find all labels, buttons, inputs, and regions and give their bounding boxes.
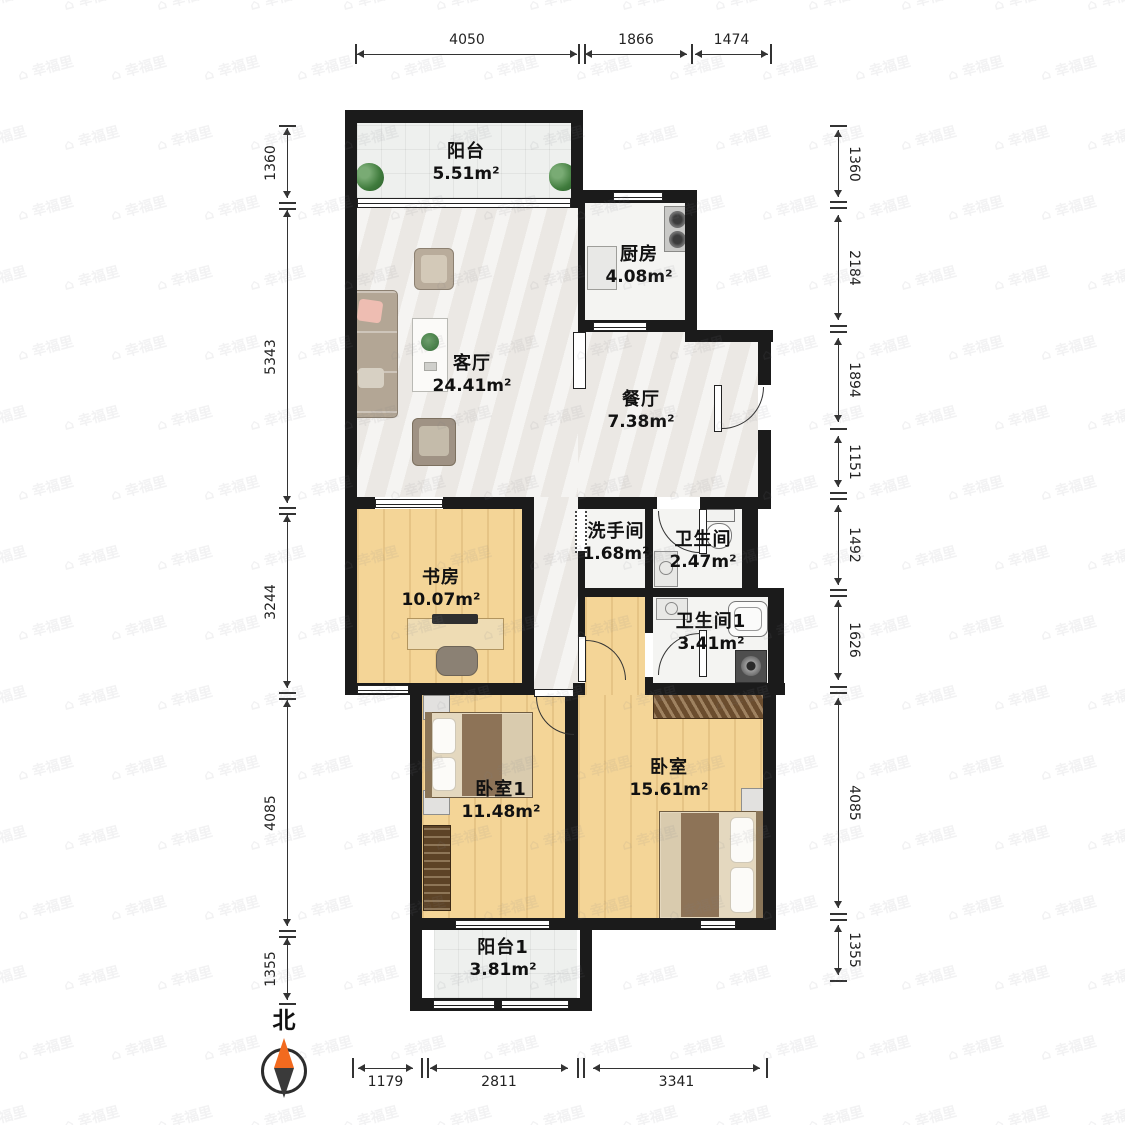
watermark-logo: ⌂ 幸福里 — [340, 0, 400, 15]
watermark-logo: ⌂ 幸福里 — [898, 961, 958, 995]
dimension-label: 1894 — [846, 362, 862, 398]
dimension-arrow — [358, 1068, 413, 1069]
wall — [578, 203, 585, 332]
watermark-logo: ⌂ 幸福里 — [852, 191, 912, 225]
dimension-tick — [691, 44, 693, 64]
watermark-logo: ⌂ 幸福里 — [1084, 121, 1125, 155]
watermark-logo: ⌂ 幸福里 — [201, 331, 261, 365]
watermark-logo: ⌂ 幸福里 — [991, 0, 1051, 15]
dimension-tick — [770, 44, 772, 64]
room-name: 洗手间 — [582, 520, 649, 543]
watermark-logo: ⌂ 幸福里 — [1038, 891, 1098, 925]
watermark-logo: ⌂ 幸福里 — [1084, 681, 1125, 715]
watermark-logo: ⌂ 幸福里 — [294, 51, 354, 85]
dimension-arrow — [287, 700, 288, 926]
watermark-logo: ⌂ 幸福里 — [154, 821, 214, 855]
dimension-tick — [830, 589, 847, 591]
watermark-logo: ⌂ 幸福里 — [108, 191, 168, 225]
wall — [522, 509, 534, 683]
room-area: 10.07m² — [402, 589, 481, 611]
watermark-logo: ⌂ 幸福里 — [340, 1101, 400, 1125]
watermark-logo: ⌂ 幸福里 — [108, 611, 168, 645]
watermark-logo: ⌂ 幸福里 — [108, 471, 168, 505]
watermark-logo: ⌂ 幸福里 — [619, 1101, 679, 1125]
room-label-balcony1: 阳台13.81m² — [469, 936, 536, 981]
watermark-logo: ⌂ 幸福里 — [712, 1101, 772, 1125]
dimension-tick — [279, 692, 296, 694]
window — [357, 198, 571, 208]
dimension-label: 3244 — [263, 584, 279, 620]
room-label-dining: 餐厅7.38m² — [607, 388, 674, 433]
watermark-logo: ⌂ 幸福里 — [61, 961, 121, 995]
watermark-logo: ⌂ 幸福里 — [852, 1031, 912, 1065]
dimension-label: 4050 — [449, 32, 485, 48]
dimension-arrow — [838, 600, 839, 680]
watermark-logo: ⌂ 幸福里 — [898, 681, 958, 715]
door-leaf — [578, 636, 586, 682]
dimension-tick — [279, 930, 296, 932]
plant — [356, 163, 384, 191]
watermark-logo: ⌂ 幸福里 — [0, 961, 29, 995]
dimension-tick — [279, 125, 296, 127]
watermark-logo: ⌂ 幸福里 — [619, 121, 679, 155]
watermark-logo: ⌂ 幸福里 — [898, 121, 958, 155]
watermark-logo: ⌂ 幸福里 — [991, 401, 1051, 435]
dimension-arrow — [838, 925, 839, 975]
bed-headboard — [756, 811, 763, 919]
watermark-logo: ⌂ 幸福里 — [201, 751, 261, 785]
dimension-tick — [830, 331, 847, 333]
dimension-tick — [830, 913, 847, 915]
room-label-bedroom: 卧室15.61m² — [630, 756, 709, 801]
watermark-logo: ⌂ 幸福里 — [340, 961, 400, 995]
dimension-tick — [577, 1058, 579, 1078]
dimension-tick — [279, 507, 296, 509]
room-area: 2.47m² — [669, 551, 736, 573]
watermark-logo: ⌂ 幸福里 — [898, 401, 958, 435]
wall — [345, 509, 357, 695]
watermark-logo: ⌂ 幸福里 — [0, 261, 29, 295]
window — [593, 322, 647, 331]
floor-hallway — [534, 497, 578, 695]
window — [613, 192, 663, 201]
watermark-logo: ⌂ 幸福里 — [898, 1101, 958, 1125]
dimension-label: 2184 — [846, 250, 862, 286]
window — [357, 685, 409, 694]
compass-needle-south-icon — [274, 1068, 294, 1098]
window — [433, 1000, 495, 1009]
watermark-logo: ⌂ 幸福里 — [61, 401, 121, 435]
washer-door — [741, 656, 761, 676]
watermark-logo: ⌂ 幸福里 — [526, 1101, 586, 1125]
dimension-label: 1492 — [846, 527, 862, 563]
watermark-logo: ⌂ 幸福里 — [991, 821, 1051, 855]
watermark-logo: ⌂ 幸福里 — [61, 261, 121, 295]
watermark-logo: ⌂ 幸福里 — [61, 1101, 121, 1125]
room-area: 3.81m² — [469, 959, 536, 981]
dimension-arrow — [838, 215, 839, 320]
watermark-logo: ⌂ 幸福里 — [991, 681, 1051, 715]
dimension-tick — [584, 44, 586, 64]
dimension-arrow — [838, 505, 839, 585]
watermark-logo: ⌂ 幸福里 — [1038, 611, 1098, 645]
watermark-logo: ⌂ 幸福里 — [61, 121, 121, 155]
watermark-logo: ⌂ 幸福里 — [0, 541, 29, 575]
watermark-logo: ⌂ 幸福里 — [433, 0, 493, 15]
watermark-logo: ⌂ 幸福里 — [387, 51, 447, 85]
watermark-logo: ⌂ 幸福里 — [898, 261, 958, 295]
dimension-tick — [830, 125, 847, 127]
watermark-logo: ⌂ 幸福里 — [154, 541, 214, 575]
compass-north-label: 北 — [273, 1001, 296, 1035]
wall — [410, 695, 422, 930]
dimension-arrow — [287, 128, 288, 198]
room-area: 15.61m² — [630, 779, 709, 801]
dimension-arrow — [287, 938, 288, 1000]
door-leaf — [534, 689, 574, 697]
dimension-tick — [427, 1058, 429, 1078]
dimension-tick — [279, 202, 296, 204]
room-label-bathroom1: 卫生间13.41m² — [676, 610, 747, 655]
wall — [345, 197, 357, 509]
watermark-logo: ⌂ 幸福里 — [0, 1101, 29, 1125]
watermark-logo: ⌂ 幸福里 — [1084, 0, 1125, 15]
watermark-logo: ⌂ 幸福里 — [619, 0, 679, 15]
dimension-tick — [279, 208, 296, 210]
watermark-logo: ⌂ 幸福里 — [201, 611, 261, 645]
watermark-logo: ⌂ 幸福里 — [619, 961, 679, 995]
wall — [578, 588, 784, 597]
watermark-logo: ⌂ 幸福里 — [61, 681, 121, 715]
watermark-logo: ⌂ 幸福里 — [1084, 261, 1125, 295]
door-leaf — [714, 385, 722, 432]
armchair-cushion — [421, 255, 447, 283]
dimension-arrow — [287, 210, 288, 503]
room-label-bedroom1: 卧室111.48m² — [462, 778, 541, 823]
watermark-logo: ⌂ 幸福里 — [945, 751, 1005, 785]
watermark-logo: ⌂ 幸福里 — [154, 961, 214, 995]
dimension-tick — [830, 207, 847, 209]
dimension-label: 1179 — [368, 1074, 404, 1090]
dimension-tick — [578, 44, 580, 64]
room-area: 11.48m² — [462, 801, 541, 823]
bed-blanket — [681, 813, 719, 917]
window — [375, 499, 443, 508]
wall — [758, 342, 771, 385]
watermark-logo: ⌂ 幸福里 — [991, 541, 1051, 575]
dimension-tick — [583, 1058, 585, 1078]
dimension-arrow — [585, 54, 687, 55]
room-area: 5.51m² — [432, 163, 499, 185]
dimension-label: 1626 — [846, 622, 862, 658]
watermark-logo: ⌂ 幸福里 — [15, 51, 75, 85]
room-name: 书房 — [402, 566, 481, 589]
watermark-logo: ⌂ 幸福里 — [712, 121, 772, 155]
bed-headboard — [425, 712, 432, 798]
wall — [758, 430, 771, 509]
watermark-logo: ⌂ 幸福里 — [945, 471, 1005, 505]
wall — [763, 683, 776, 930]
wall — [422, 683, 534, 695]
wall — [685, 330, 773, 342]
watermark-logo: ⌂ 幸福里 — [15, 611, 75, 645]
dimension-tick — [830, 980, 847, 982]
watermark-logo: ⌂ 幸福里 — [898, 821, 958, 855]
dimension-label: 1360 — [263, 145, 279, 181]
watermark-logo: ⌂ 幸福里 — [154, 681, 214, 715]
dimension-tick — [830, 919, 847, 921]
room-name: 客厅 — [433, 352, 512, 375]
watermark-logo: ⌂ 幸福里 — [945, 891, 1005, 925]
watermark-logo: ⌂ 幸福里 — [852, 331, 912, 365]
dimension-tick — [766, 1058, 768, 1078]
wall — [768, 597, 784, 695]
wall — [578, 597, 585, 640]
dimension-label: 1474 — [714, 32, 750, 48]
armchair-cushion — [419, 426, 449, 456]
watermark-logo: ⌂ 幸福里 — [1084, 821, 1125, 855]
dimension-label: 5343 — [263, 339, 279, 375]
watermark-logo: ⌂ 幸福里 — [154, 121, 214, 155]
watermark-logo: ⌂ 幸福里 — [573, 51, 633, 85]
room-area: 7.38m² — [607, 411, 674, 433]
watermark-logo: ⌂ 幸福里 — [201, 51, 261, 85]
wall — [345, 110, 583, 123]
room-name: 阳台1 — [469, 936, 536, 959]
watermark-logo: ⌂ 幸福里 — [433, 1101, 493, 1125]
watermark-logo: ⌂ 幸福里 — [154, 401, 214, 435]
sofa-cushion — [358, 368, 384, 388]
room-area: 24.41m² — [433, 375, 512, 397]
watermark-logo: ⌂ 幸福里 — [201, 1031, 261, 1065]
watermark-logo: ⌂ 幸福里 — [15, 751, 75, 785]
room-label-study: 书房10.07m² — [402, 566, 481, 611]
wall — [410, 930, 422, 1005]
watermark-logo: ⌂ 幸福里 — [1038, 1031, 1098, 1065]
watermark-logo: ⌂ 幸福里 — [201, 191, 261, 225]
dimension-arrow — [430, 1068, 568, 1069]
watermark-logo: ⌂ 幸福里 — [108, 331, 168, 365]
watermark-logo: ⌂ 幸福里 — [0, 681, 29, 715]
dimension-label: 1866 — [618, 32, 654, 48]
watermark-logo: ⌂ 幸福里 — [666, 1031, 726, 1065]
room-name: 餐厅 — [607, 388, 674, 411]
watermark-logo: ⌂ 幸福里 — [991, 121, 1051, 155]
watermark-logo: ⌂ 幸福里 — [1038, 751, 1098, 785]
watermark-logo: ⌂ 幸福里 — [340, 821, 400, 855]
wall — [580, 930, 592, 1005]
watermark-logo: ⌂ 幸福里 — [712, 261, 772, 295]
watermark-logo: ⌂ 幸福里 — [61, 821, 121, 855]
watermark-logo: ⌂ 幸福里 — [108, 751, 168, 785]
watermark-logo: ⌂ 幸福里 — [108, 1031, 168, 1065]
room-label-living: 客厅24.41m² — [433, 352, 512, 397]
watermark-logo: ⌂ 幸福里 — [805, 0, 865, 15]
desk-monitor — [432, 614, 478, 624]
stove-burner — [669, 211, 686, 228]
watermark-logo: ⌂ 幸福里 — [759, 191, 819, 225]
watermark-logo: ⌂ 幸福里 — [247, 261, 307, 295]
watermark-logo: ⌂ 幸福里 — [898, 541, 958, 575]
room-name: 厨房 — [605, 243, 672, 266]
watermark-logo: ⌂ 幸福里 — [945, 191, 1005, 225]
floorplan-canvas: 阳台5.51m² 厨房4.08m² 客厅24.41m² 餐厅7.38m² 洗手间… — [0, 0, 1125, 1125]
wardrobe — [653, 691, 764, 719]
watermark-logo: ⌂ 幸福里 — [294, 891, 354, 925]
room-name: 卫生间 — [669, 528, 736, 551]
watermark-logo: ⌂ 幸福里 — [0, 401, 29, 435]
watermark-logo: ⌂ 幸福里 — [480, 51, 540, 85]
room-label-bathroom: 卫生间2.47m² — [669, 528, 736, 573]
bed-pillow — [730, 817, 754, 863]
watermark-logo: ⌂ 幸福里 — [991, 261, 1051, 295]
watermark-logo: ⌂ 幸福里 — [247, 541, 307, 575]
watermark-logo: ⌂ 幸福里 — [945, 1031, 1005, 1065]
room-area: 3.41m² — [676, 633, 747, 655]
dimension-tick — [830, 498, 847, 500]
dimension-tick — [830, 492, 847, 494]
dimension-label: 4085 — [846, 785, 862, 821]
watermark-logo: ⌂ 幸福里 — [945, 51, 1005, 85]
watermark-logo: ⌂ 幸福里 — [1084, 541, 1125, 575]
room-name: 阳台 — [432, 140, 499, 163]
dimension-tick — [830, 686, 847, 688]
window — [700, 920, 736, 929]
watermark-logo: ⌂ 幸福里 — [247, 401, 307, 435]
watermark-logo: ⌂ 幸福里 — [247, 0, 307, 15]
desk-chair — [436, 646, 478, 676]
plant-pot — [421, 333, 439, 351]
watermark-logo: ⌂ 幸福里 — [15, 471, 75, 505]
room-label-kitchen: 厨房4.08m² — [605, 243, 672, 288]
watermark-logo: ⌂ 幸福里 — [0, 821, 29, 855]
watermark-logo: ⌂ 幸福里 — [154, 0, 214, 15]
watermark-logo: ⌂ 幸福里 — [991, 961, 1051, 995]
sofa-pillow — [357, 298, 384, 323]
room-area: 4.08m² — [605, 266, 672, 288]
watermark-logo: ⌂ 幸福里 — [852, 891, 912, 925]
watermark-logo: ⌂ 幸福里 — [1038, 191, 1098, 225]
dimension-arrow — [838, 338, 839, 422]
wall — [573, 683, 585, 695]
watermark-logo: ⌂ 幸福里 — [852, 51, 912, 85]
dimension-tick — [279, 936, 296, 938]
dimension-arrow — [357, 54, 577, 55]
watermark-logo: ⌂ 幸福里 — [759, 51, 819, 85]
watermark-logo: ⌂ 幸福里 — [201, 471, 261, 505]
bed-pillow — [432, 718, 456, 754]
dimension-label: 1151 — [846, 444, 862, 480]
watermark-logo: ⌂ 幸福里 — [1038, 471, 1098, 505]
dimension-label: 1355 — [263, 951, 279, 987]
watermark-logo: ⌂ 幸福里 — [387, 1031, 447, 1065]
watermark-logo: ⌂ 幸福里 — [0, 0, 29, 15]
dimension-tick — [421, 1058, 423, 1078]
watermark-logo: ⌂ 幸福里 — [15, 891, 75, 925]
watermark-logo: ⌂ 幸福里 — [1038, 331, 1098, 365]
dimension-arrow — [695, 54, 768, 55]
room-label-balcony: 阳台5.51m² — [432, 140, 499, 185]
dimension-arrow — [287, 515, 288, 688]
watermark-logo: ⌂ 幸福里 — [1084, 401, 1125, 435]
watermark-logo: ⌂ 幸福里 — [247, 1101, 307, 1125]
toilet-tank — [703, 509, 735, 522]
bed-pillow — [730, 867, 754, 913]
room-label-washroom: 洗手间1.68m² — [582, 520, 649, 565]
watermark-logo: ⌂ 幸福里 — [526, 0, 586, 15]
watermark-logo: ⌂ 幸福里 — [991, 1101, 1051, 1125]
wardrobe — [423, 825, 451, 911]
compass-needle-north-icon — [274, 1038, 294, 1068]
wall — [742, 497, 758, 588]
watermark-logo: ⌂ 幸福里 — [1084, 1101, 1125, 1125]
bed-pillow — [432, 757, 456, 791]
dimension-tick — [355, 44, 357, 64]
watermark-logo: ⌂ 幸福里 — [805, 1101, 865, 1125]
dimension-label: 3341 — [659, 1074, 695, 1090]
dimension-label: 1360 — [846, 146, 862, 182]
room-area: 1.68m² — [582, 543, 649, 565]
watermark-logo: ⌂ 幸福里 — [154, 1101, 214, 1125]
watermark-logo: ⌂ 幸福里 — [945, 331, 1005, 365]
watermark-logo: ⌂ 幸福里 — [61, 541, 121, 575]
dimension-tick — [279, 513, 296, 515]
dimension-tick — [830, 201, 847, 203]
watermark-logo: ⌂ 幸福里 — [1038, 51, 1098, 85]
window — [455, 920, 550, 929]
bed-blanket-edge — [661, 813, 681, 917]
watermark-logo: ⌂ 幸福里 — [945, 611, 1005, 645]
dimension-arrow — [838, 436, 839, 487]
dimension-arrow — [838, 130, 839, 197]
watermark-logo: ⌂ 幸福里 — [898, 0, 958, 15]
watermark-logo: ⌂ 幸福里 — [15, 1031, 75, 1065]
dimension-label: 4085 — [263, 795, 279, 831]
watermark-logo: ⌂ 幸福里 — [15, 331, 75, 365]
dimension-tick — [830, 428, 847, 430]
watermark-logo: ⌂ 幸福里 — [712, 0, 772, 15]
watermark-logo: ⌂ 幸福里 — [201, 891, 261, 925]
watermark-logo: ⌂ 幸福里 — [1084, 961, 1125, 995]
dimension-tick — [352, 1058, 354, 1078]
room-name: 卧室1 — [462, 778, 541, 801]
cabinet — [573, 332, 586, 389]
dimension-tick — [830, 325, 847, 327]
dimension-tick — [279, 698, 296, 700]
room-name: 卫生间1 — [676, 610, 747, 633]
watermark-logo: ⌂ 幸福里 — [0, 121, 29, 155]
watermark-logo: ⌂ 幸福里 — [247, 681, 307, 715]
watermark-logo: ⌂ 幸福里 — [759, 1031, 819, 1065]
wall — [645, 597, 653, 633]
watermark-logo: ⌂ 幸福里 — [61, 0, 121, 15]
dimension-label: 2811 — [481, 1074, 517, 1090]
window — [501, 1000, 569, 1009]
watermark-logo: ⌂ 幸福里 — [108, 891, 168, 925]
dimension-tick — [830, 595, 847, 597]
wall — [443, 497, 534, 509]
dimension-tick — [830, 692, 847, 694]
watermark-logo: ⌂ 幸福里 — [108, 51, 168, 85]
watermark-logo: ⌂ 幸福里 — [805, 821, 865, 855]
dimension-label: 1355 — [846, 932, 862, 968]
room-name: 卧室 — [630, 756, 709, 779]
watermark-logo: ⌂ 幸福里 — [15, 191, 75, 225]
dimension-arrow — [838, 698, 839, 908]
dimension-arrow — [593, 1068, 760, 1069]
watermark-logo: ⌂ 幸福里 — [480, 1031, 540, 1065]
watermark-logo: ⌂ 幸福里 — [712, 961, 772, 995]
